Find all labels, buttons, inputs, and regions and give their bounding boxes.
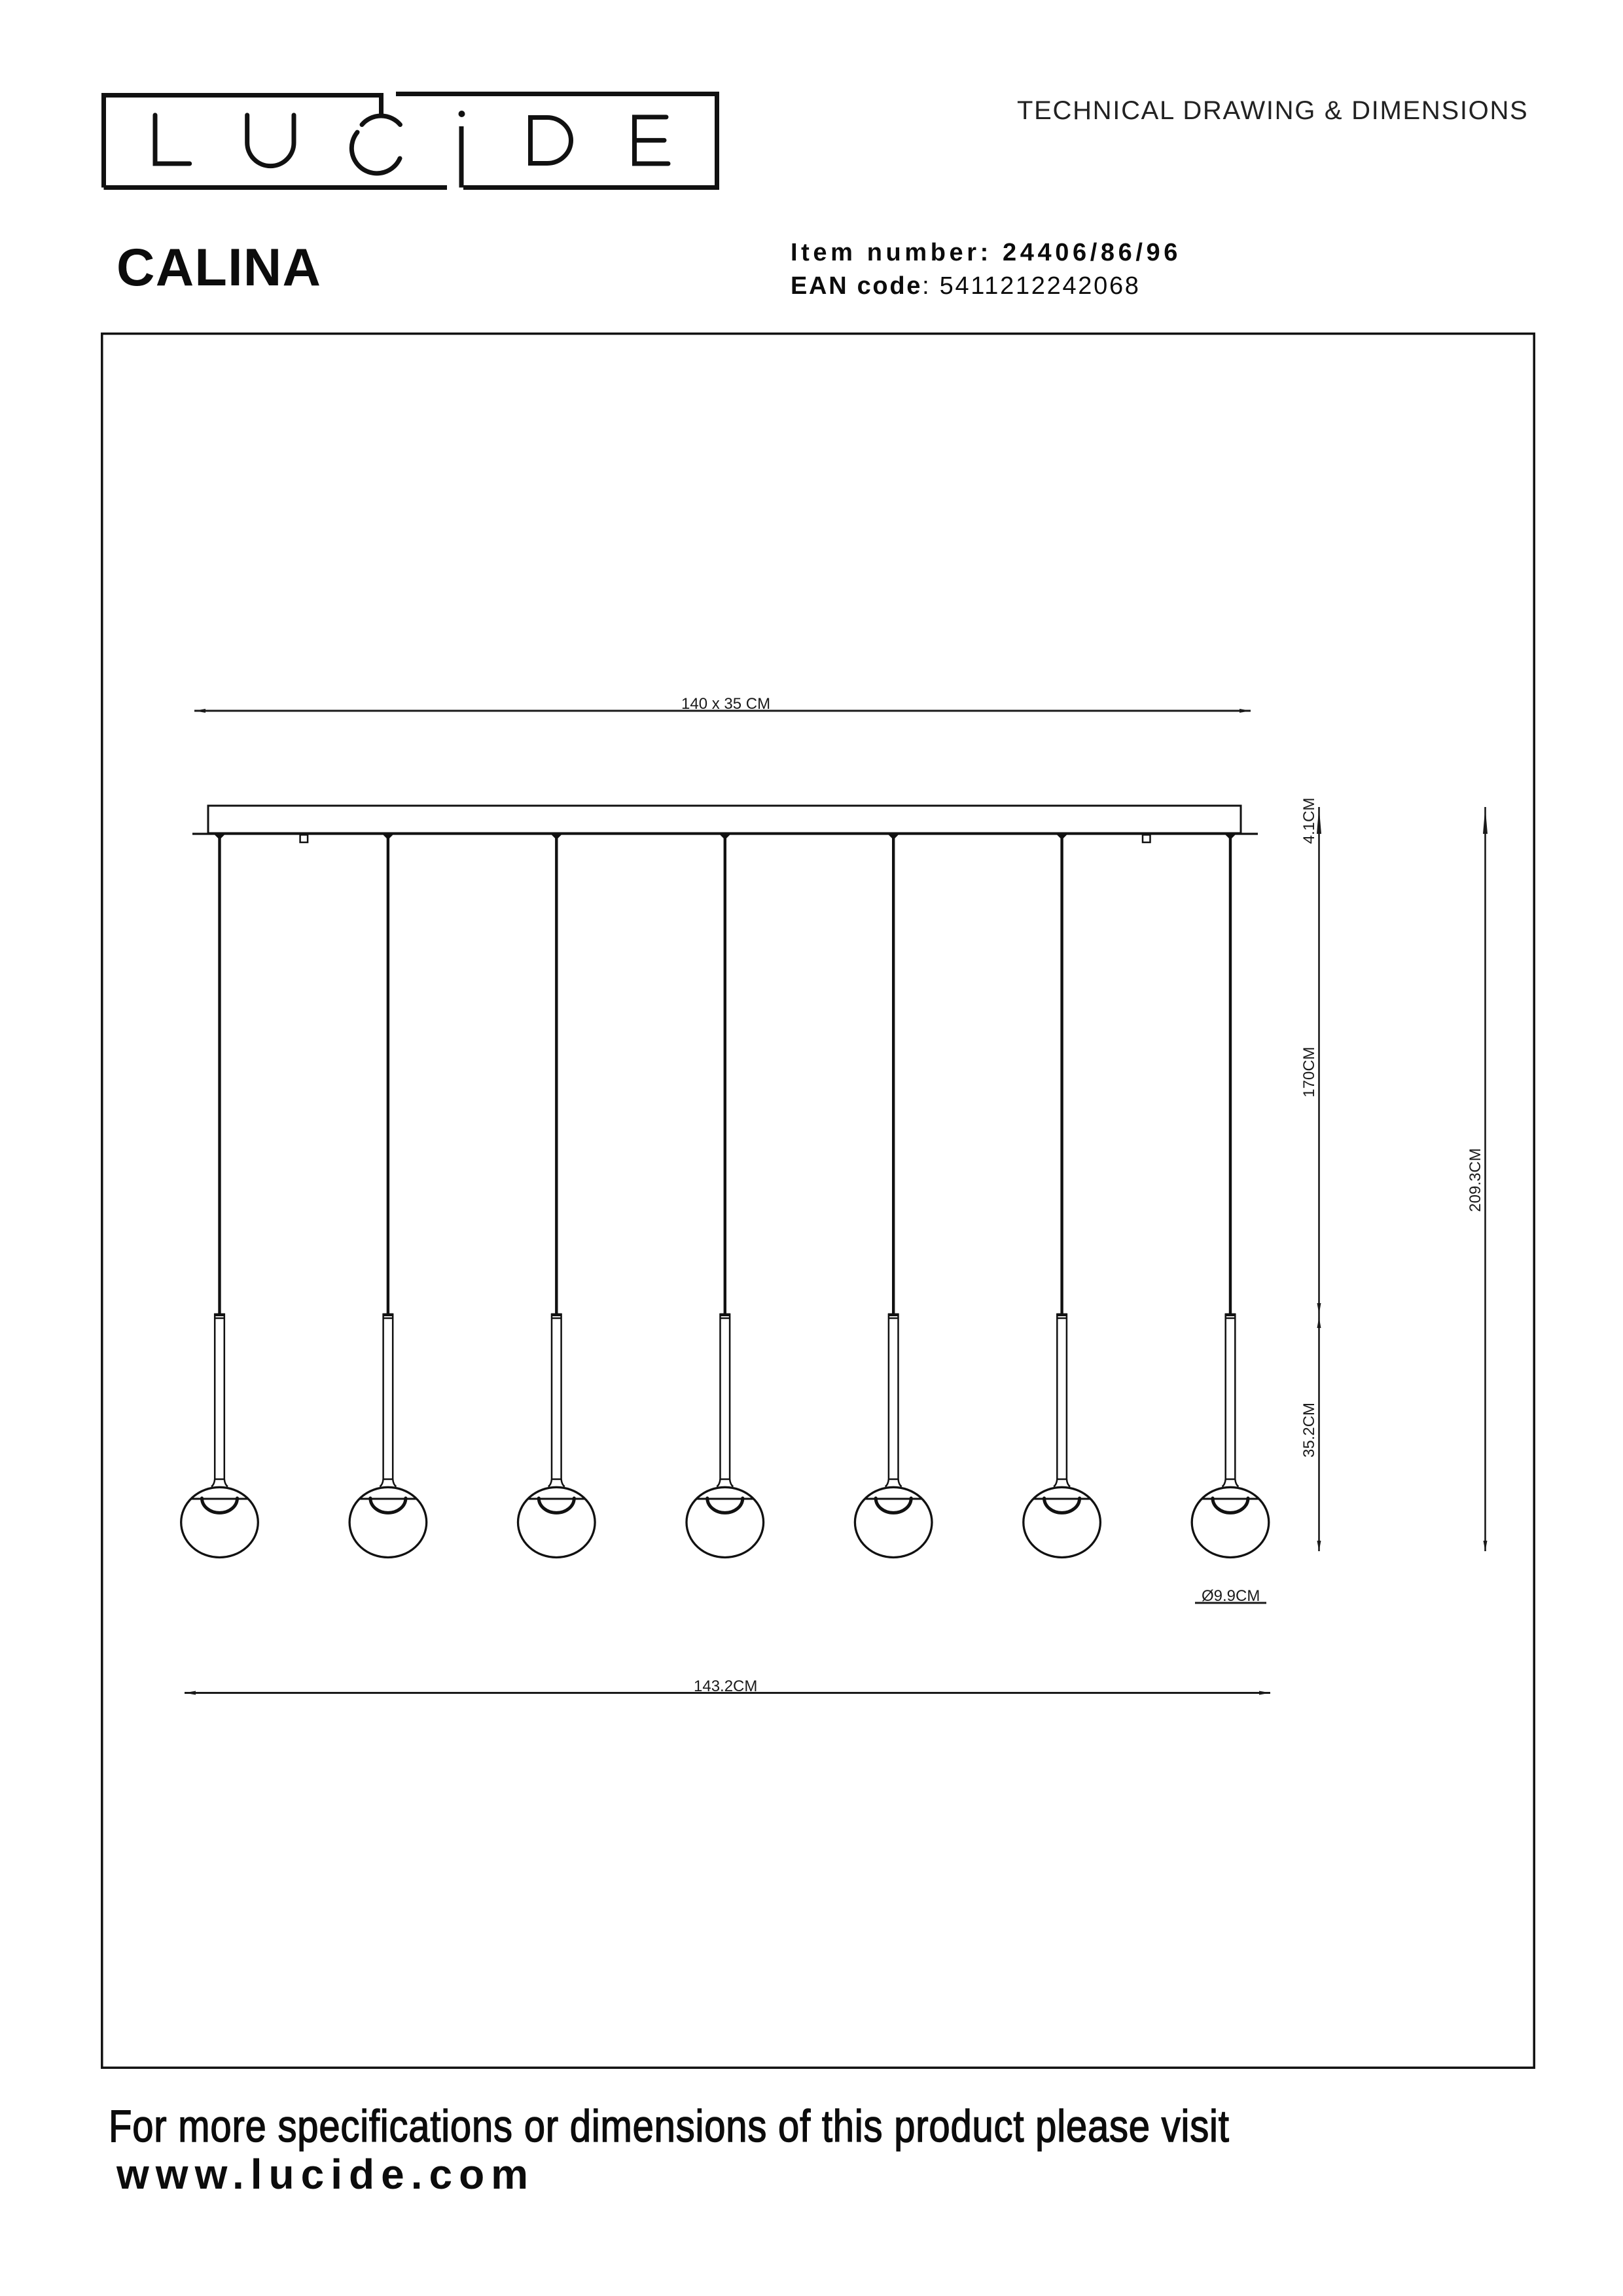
svg-text:www.lucide.com: www.lucide.com — [116, 2151, 535, 2198]
svg-text:For more specifications or dim: For more specifications or dimensions of… — [109, 2102, 1230, 2152]
svg-text:Item number: 24406/86/96: Item number: 24406/86/96 — [791, 239, 1181, 266]
svg-text:CALINA: CALINA — [116, 238, 321, 297]
svg-text:35.2CM: 35.2CM — [1300, 1403, 1318, 1458]
svg-text:143.2CM: 143.2CM — [694, 1677, 757, 1695]
svg-text:TECHNICAL DRAWING & DIMENSIONS: TECHNICAL DRAWING & DIMENSIONS — [1017, 96, 1528, 125]
svg-text:4.1CM: 4.1CM — [1300, 798, 1318, 844]
svg-text:170CM: 170CM — [1300, 1047, 1318, 1097]
svg-text:EAN code: 5411212242068: EAN code: 5411212242068 — [791, 272, 1141, 300]
svg-text:140 x 35 CM: 140 x 35 CM — [681, 695, 770, 713]
svg-text:209.3CM: 209.3CM — [1467, 1148, 1484, 1211]
